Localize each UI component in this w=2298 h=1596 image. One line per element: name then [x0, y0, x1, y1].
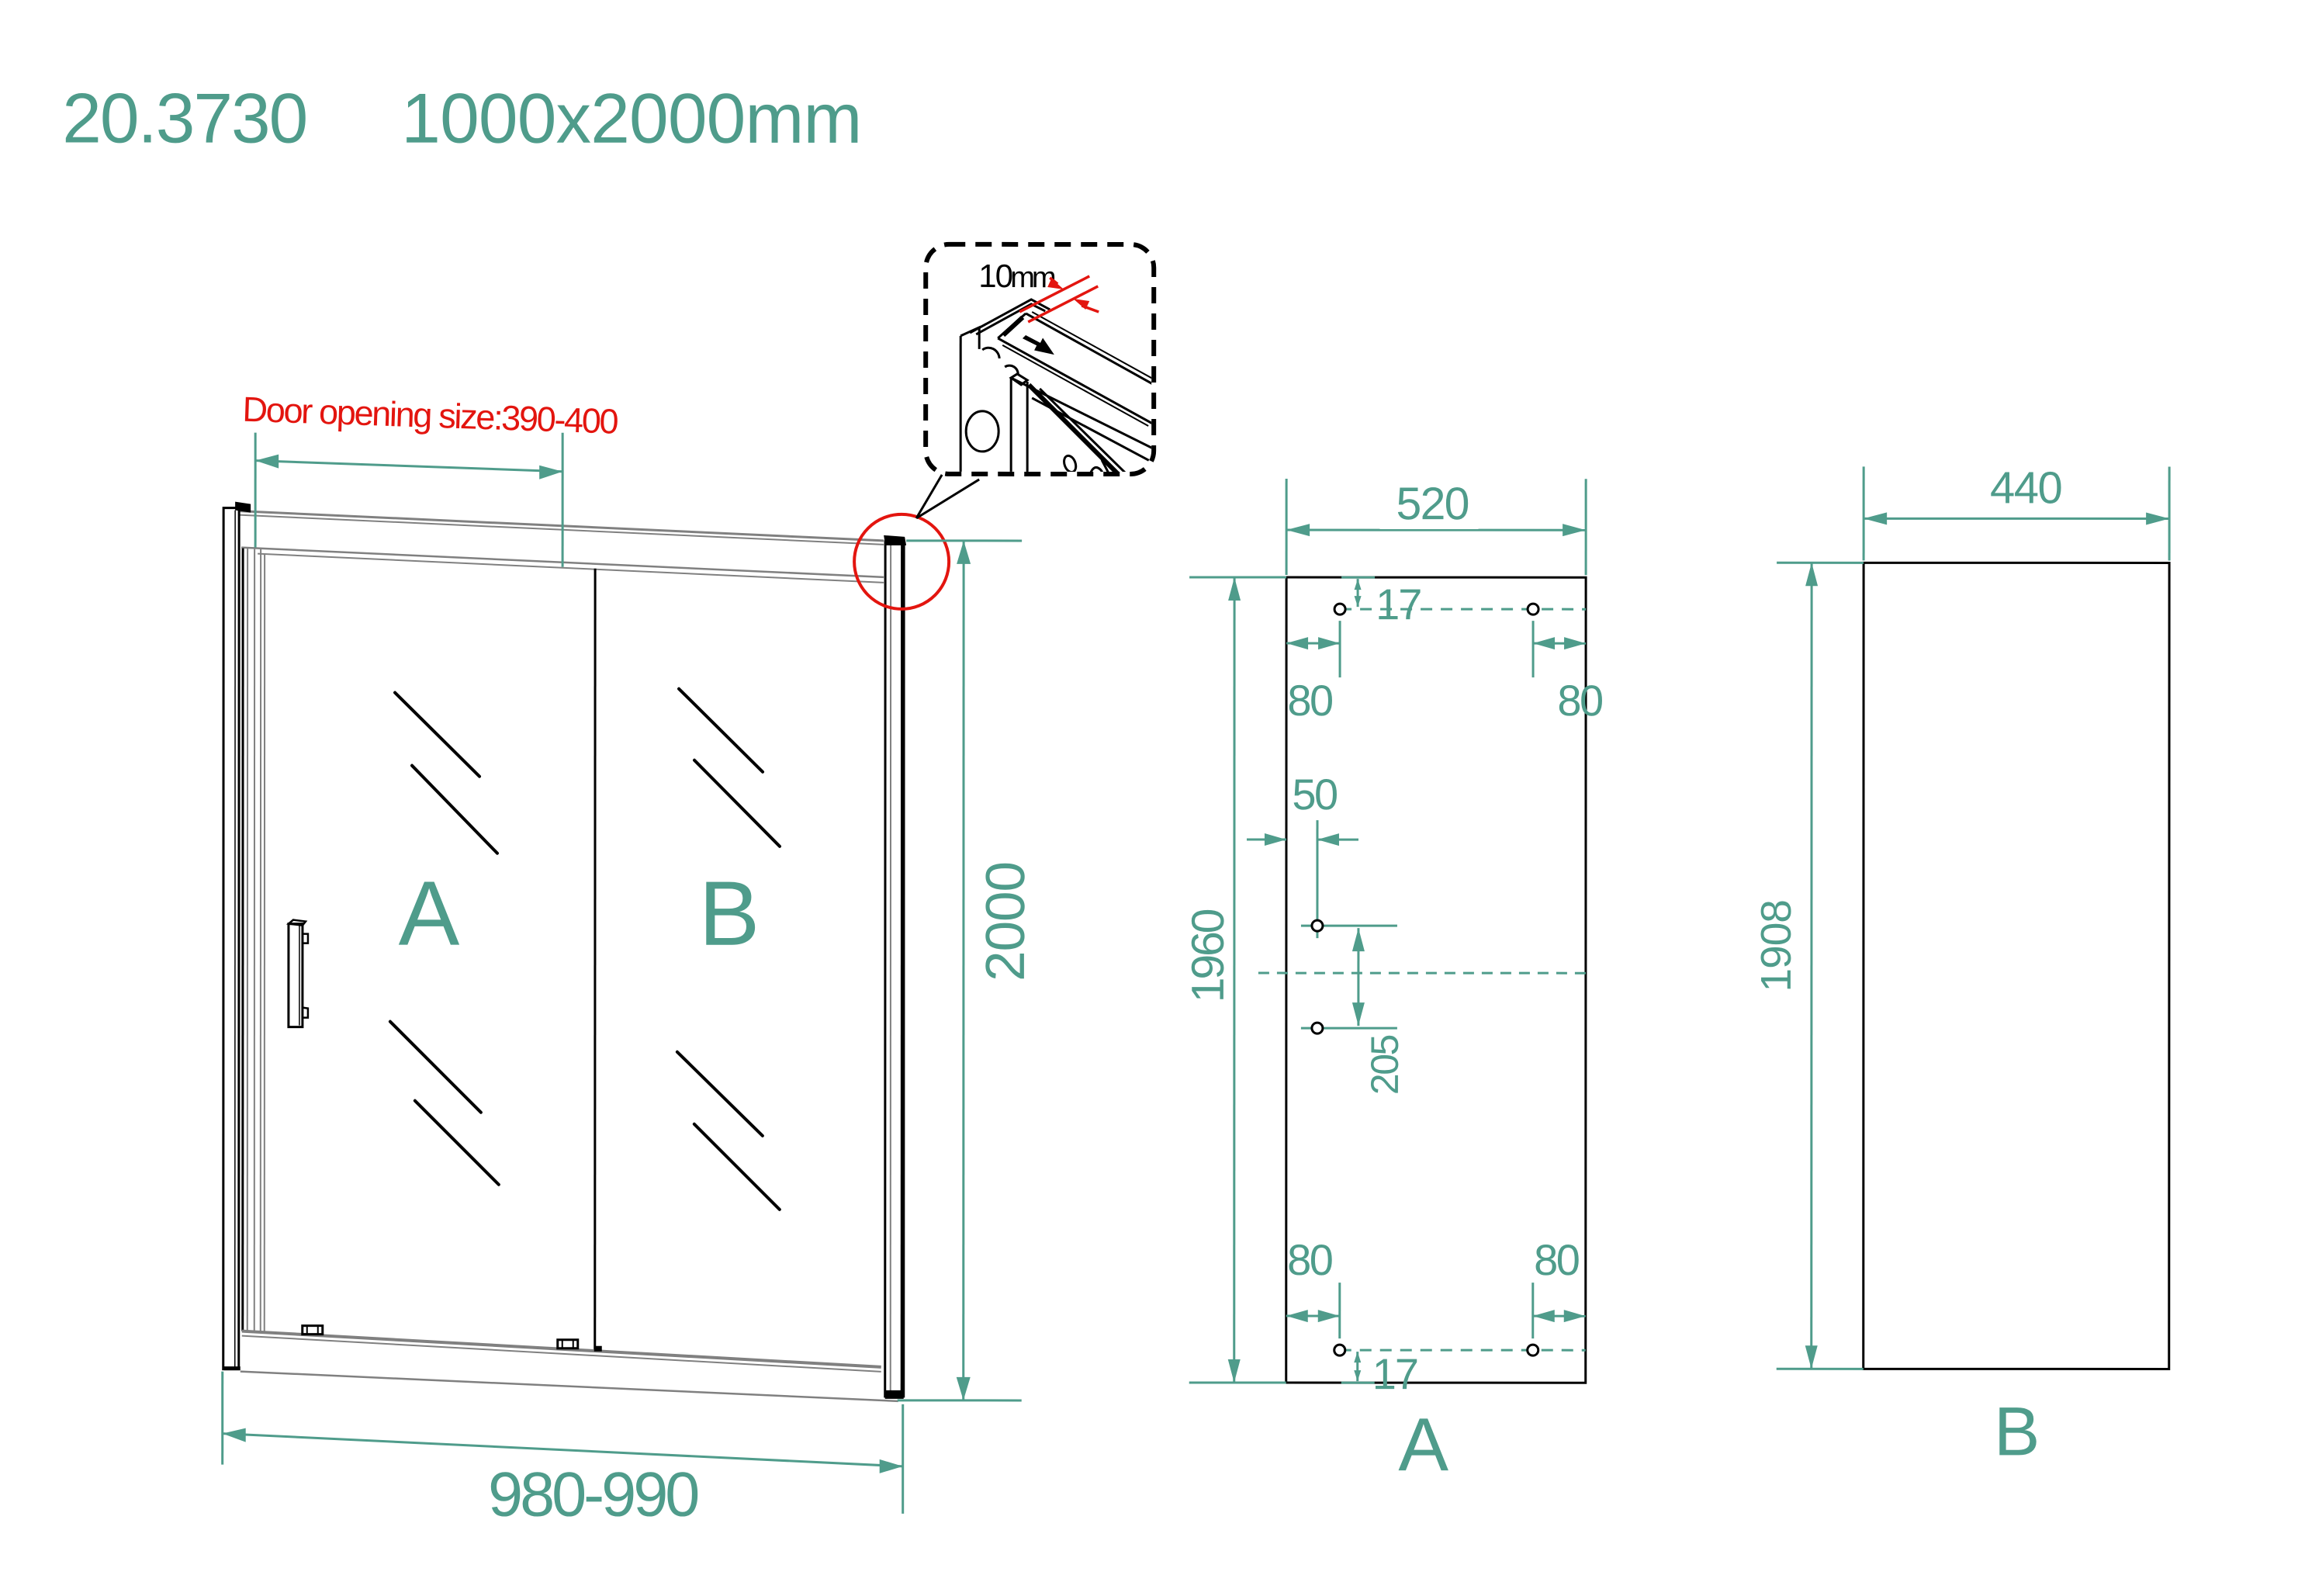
svg-text:1960: 1960 — [1182, 909, 1234, 1002]
svg-text:440: 440 — [1990, 462, 2061, 513]
svg-text:2000: 2000 — [975, 862, 1037, 981]
svg-text:80: 80 — [1287, 1235, 1332, 1284]
svg-text:80: 80 — [1534, 1235, 1579, 1284]
svg-text:17: 17 — [1372, 1349, 1417, 1398]
svg-text:20.3730: 20.3730 — [62, 80, 306, 158]
svg-text:50: 50 — [1292, 770, 1337, 819]
svg-text:B: B — [1994, 1392, 2040, 1470]
svg-text:205: 205 — [1363, 1035, 1407, 1095]
svg-text:80: 80 — [1557, 676, 1602, 725]
svg-text:10: 10 — [978, 258, 1012, 294]
svg-text:1000x2000mm: 1000x2000mm — [401, 80, 861, 158]
svg-text:B: B — [699, 863, 760, 965]
svg-text:1908: 1908 — [1752, 900, 1800, 992]
svg-text:mm: mm — [1010, 261, 1055, 294]
svg-text:980-990: 980-990 — [488, 1460, 697, 1530]
svg-text:17: 17 — [1376, 580, 1421, 628]
svg-text:520: 520 — [1396, 478, 1468, 529]
svg-text:80: 80 — [1287, 676, 1332, 725]
svg-text:A: A — [1398, 1402, 1448, 1487]
svg-text:A: A — [399, 863, 460, 965]
